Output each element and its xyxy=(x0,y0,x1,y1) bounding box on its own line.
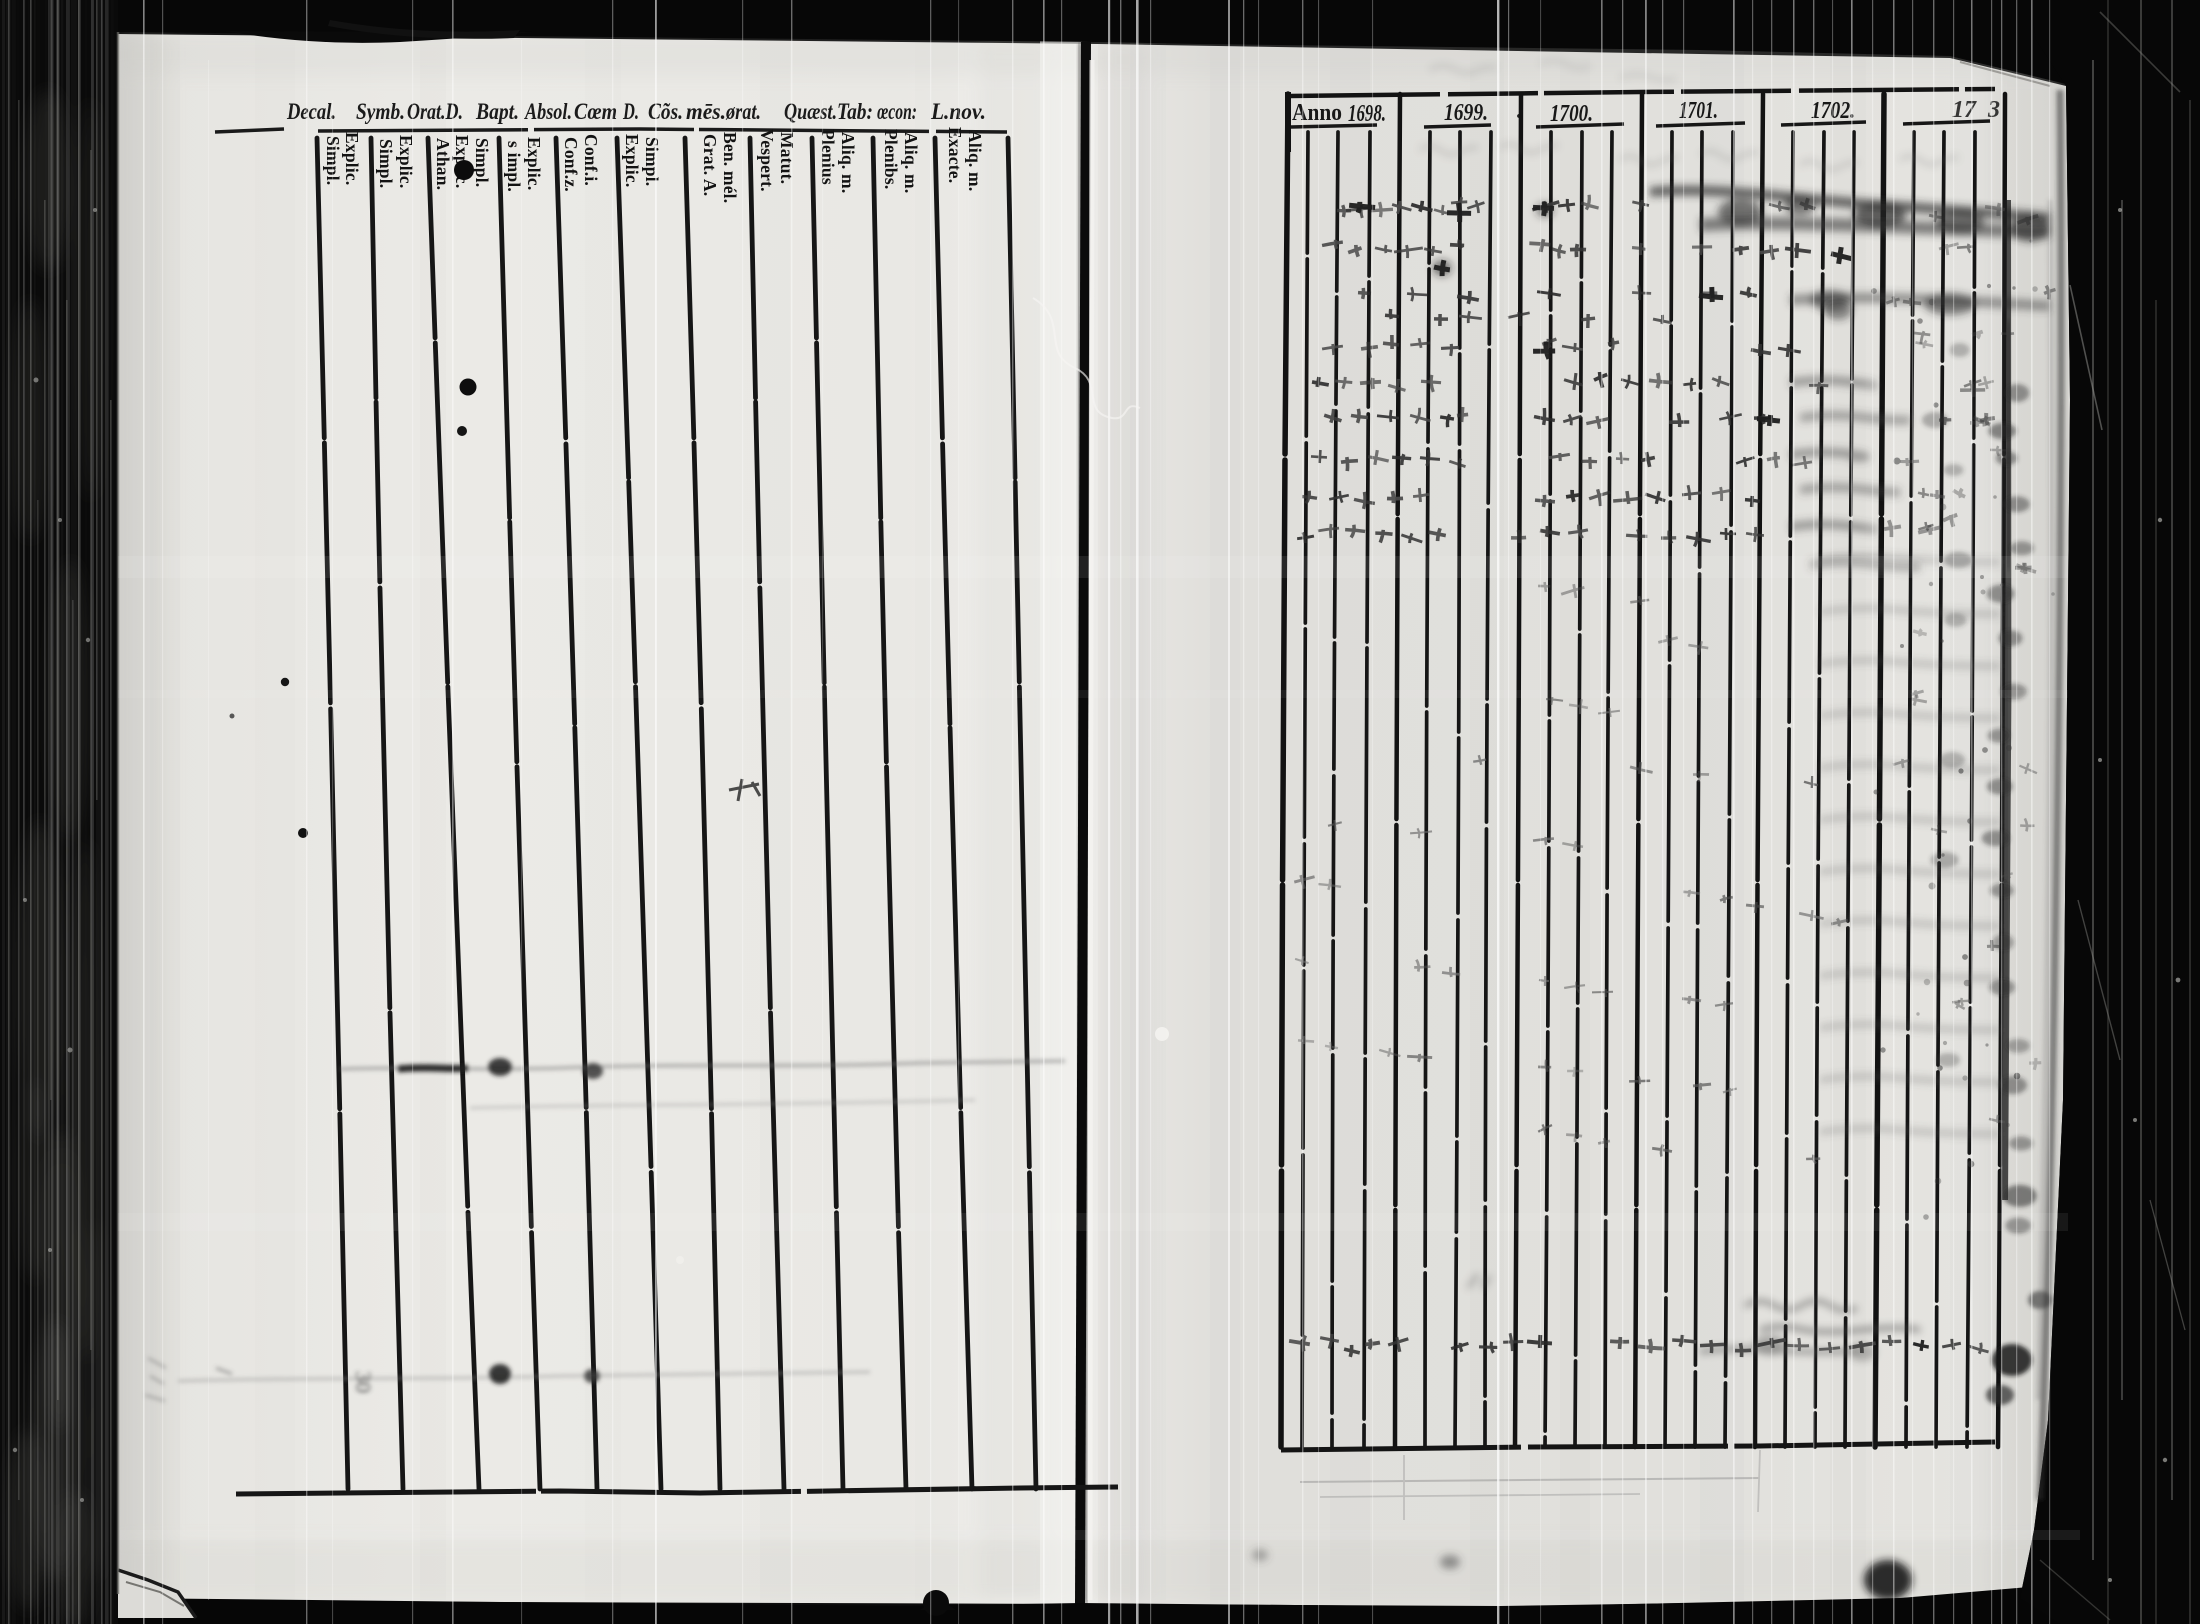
svg-text:1698.: 1698. xyxy=(1348,101,1386,127)
svg-text:Aliq. m.: Aliq. m. xyxy=(838,132,858,193)
svg-text:Athan.: Athan. xyxy=(433,138,453,190)
svg-text:Explic.: Explic. xyxy=(524,137,544,190)
svg-text:Ben. mél.: Ben. mél. xyxy=(720,132,740,203)
svg-text:1701.: 1701. xyxy=(1679,98,1718,124)
svg-text:Orat.D.: Orat.D. xyxy=(407,99,463,124)
svg-text:Simpl.: Simpl. xyxy=(472,138,492,187)
svg-text:Cœm: Cœm xyxy=(574,99,617,124)
svg-text:1699.: 1699. xyxy=(1444,100,1488,126)
svg-text:Tab:: Tab: xyxy=(837,99,873,124)
svg-text:Explic.: Explic. xyxy=(622,134,642,187)
svg-text:Aliq. m.: Aliq. m. xyxy=(901,132,921,193)
svg-text:D.: D. xyxy=(622,99,639,124)
svg-text:Conf.i.: Conf.i. xyxy=(581,134,601,186)
svg-text:Vespert.: Vespert. xyxy=(757,129,777,192)
svg-text:Cõs.: Cõs. xyxy=(648,99,683,124)
svg-text:Grat. A.: Grat. A. xyxy=(700,134,720,196)
svg-text:3: 3 xyxy=(1987,97,2000,123)
svg-text:Plenibs.: Plenibs. xyxy=(881,129,901,189)
svg-text:Absol.: Absol. xyxy=(523,99,572,124)
svg-text:Decal.: Decal. xyxy=(286,99,336,124)
svg-text:Matut.: Matut. xyxy=(777,132,797,184)
svg-text:Exacte.: Exacte. xyxy=(945,127,965,183)
svg-text:30: 30 xyxy=(351,1371,376,1393)
svg-text:Conf.z.: Conf.z. xyxy=(561,137,581,192)
svg-text:Simpl.: Simpl. xyxy=(642,137,662,186)
svg-text:Bapt.: Bapt. xyxy=(475,99,519,124)
svg-text:mēs.: mēs. xyxy=(686,99,726,124)
svg-text:Explic.: Explic. xyxy=(342,132,362,185)
svg-text:œcon:: œcon: xyxy=(877,99,917,124)
svg-text:1700.: 1700. xyxy=(1550,101,1593,127)
svg-text:Anno: Anno xyxy=(1292,100,1342,126)
svg-text:Simpl.: Simpl. xyxy=(376,139,396,188)
svg-text:Symb.: Symb. xyxy=(356,99,405,124)
svg-text:Plenius: Plenius xyxy=(818,129,838,185)
svg-text:Aliq. m.: Aliq. m. xyxy=(965,130,985,191)
svg-text:17: 17 xyxy=(1952,97,1977,123)
